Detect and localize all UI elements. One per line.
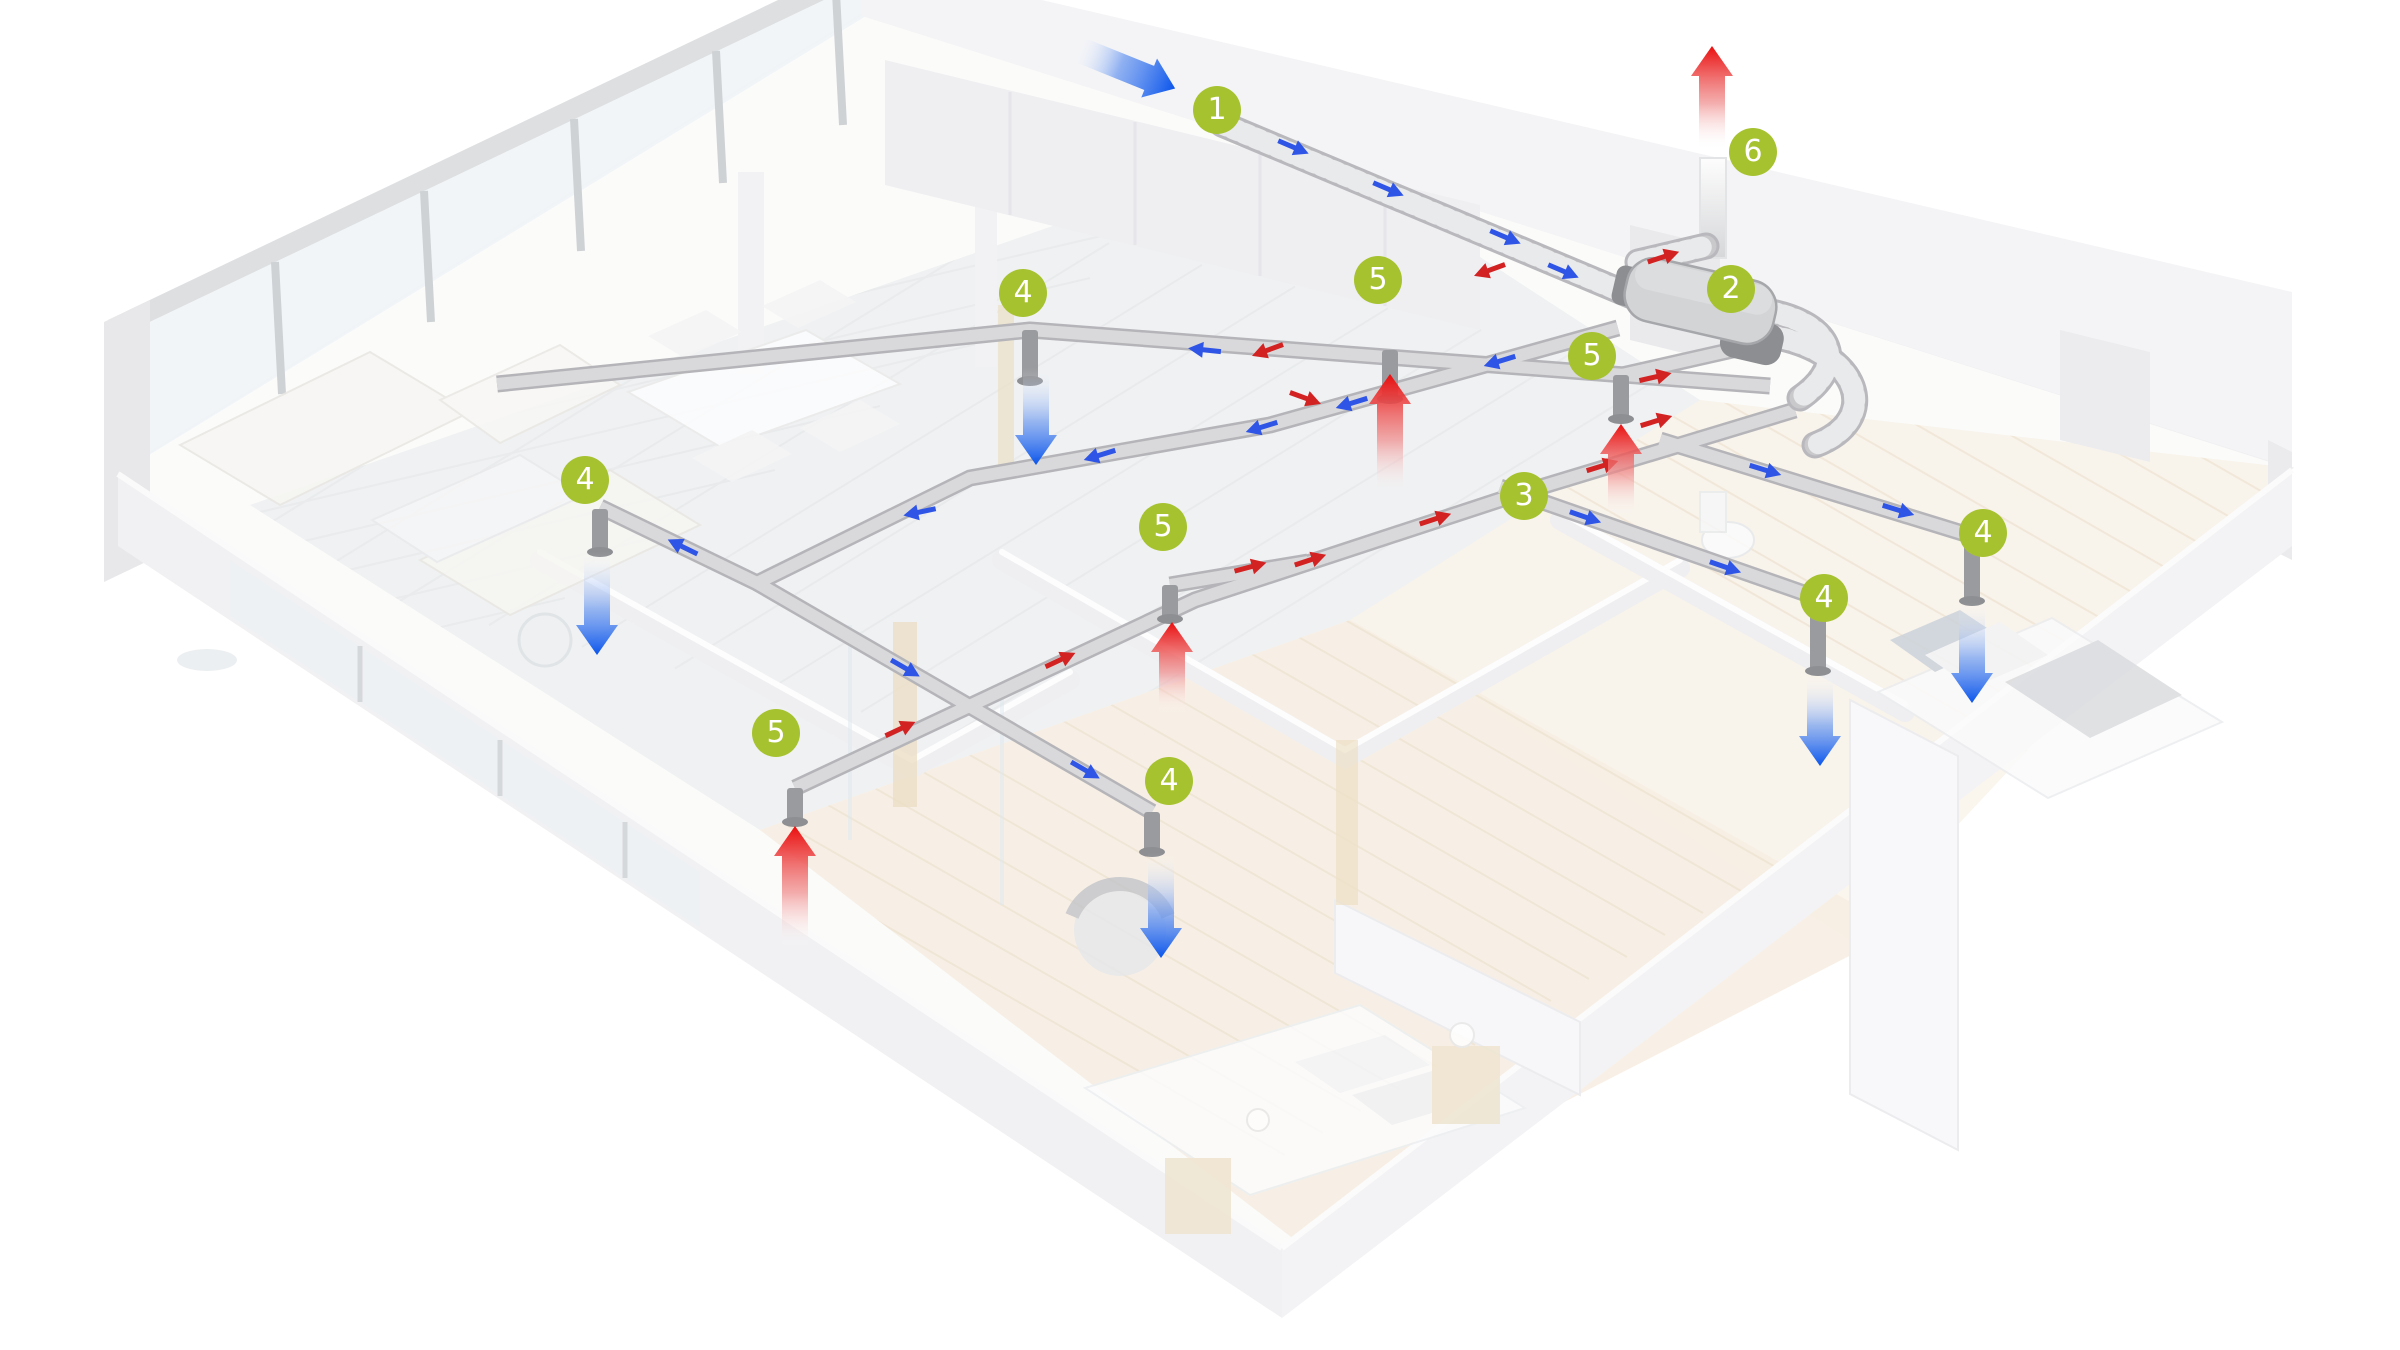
washing-machine bbox=[519, 614, 571, 666]
wood-door-frame bbox=[1336, 740, 1358, 905]
toilet-tank bbox=[1700, 492, 1726, 532]
badge-2-heat-recovery-unit[interactable]: 2 bbox=[1707, 265, 1755, 313]
lamp bbox=[1450, 1023, 1474, 1047]
wood-door-frame bbox=[893, 622, 917, 807]
apartment-isometric-scene bbox=[0, 0, 2400, 1350]
facade-pillar bbox=[738, 172, 764, 374]
floor-decor bbox=[177, 649, 237, 671]
lamp bbox=[1247, 1109, 1269, 1131]
badge-4-supply-valve[interactable]: 4 bbox=[1145, 757, 1193, 805]
badge-5-extract-valve[interactable]: 5 bbox=[1139, 503, 1187, 551]
badge-5-extract-valve[interactable]: 5 bbox=[752, 709, 800, 757]
badge-3-flat-duct-distribution[interactable]: 3 bbox=[1500, 472, 1548, 520]
door-recess bbox=[2060, 330, 2150, 462]
badge-6-roof-exhaust[interactable]: 6 bbox=[1729, 128, 1777, 176]
badge-5-extract-valve[interactable]: 5 bbox=[1354, 256, 1402, 304]
badge-4-supply-valve[interactable]: 4 bbox=[999, 269, 1047, 317]
nightstand bbox=[1432, 1046, 1500, 1124]
ventilation-diagram: 1234444455556 bbox=[0, 0, 2400, 1350]
roof-exhaust-arrow bbox=[1691, 46, 1733, 150]
badge-1-outdoor-air-intake-duct[interactable]: 1 bbox=[1193, 86, 1241, 134]
badge-4-supply-valve[interactable]: 4 bbox=[561, 456, 609, 504]
nightstand bbox=[1165, 1158, 1231, 1234]
badge-4-supply-valve[interactable]: 4 bbox=[1959, 509, 2007, 557]
badge-4-supply-valve[interactable]: 4 bbox=[1800, 574, 1848, 622]
badge-5-extract-valve[interactable]: 5 bbox=[1568, 332, 1616, 380]
